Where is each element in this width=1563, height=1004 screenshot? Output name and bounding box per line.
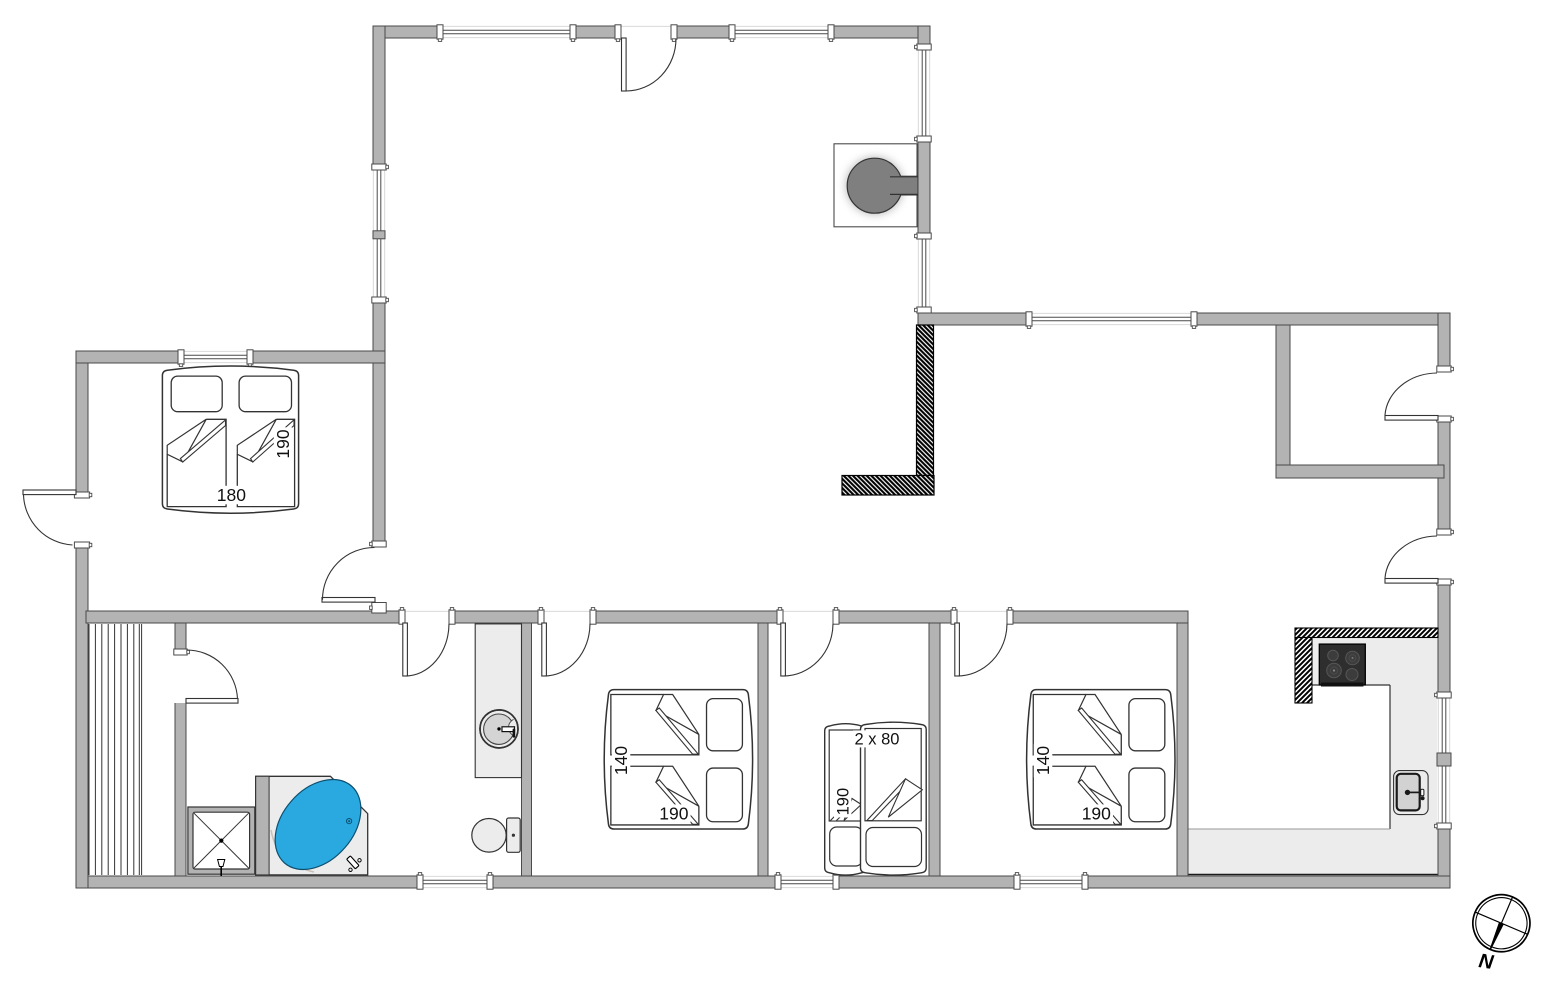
- svg-text:190: 190: [834, 788, 852, 816]
- svg-text:190: 190: [1082, 804, 1111, 824]
- svg-text:190: 190: [273, 429, 293, 458]
- svg-text:190: 190: [659, 804, 688, 824]
- svg-text:2 x 80: 2 x 80: [855, 731, 900, 749]
- svg-text:140: 140: [611, 746, 631, 775]
- svg-text:140: 140: [1033, 746, 1053, 775]
- svg-text:180: 180: [217, 485, 246, 505]
